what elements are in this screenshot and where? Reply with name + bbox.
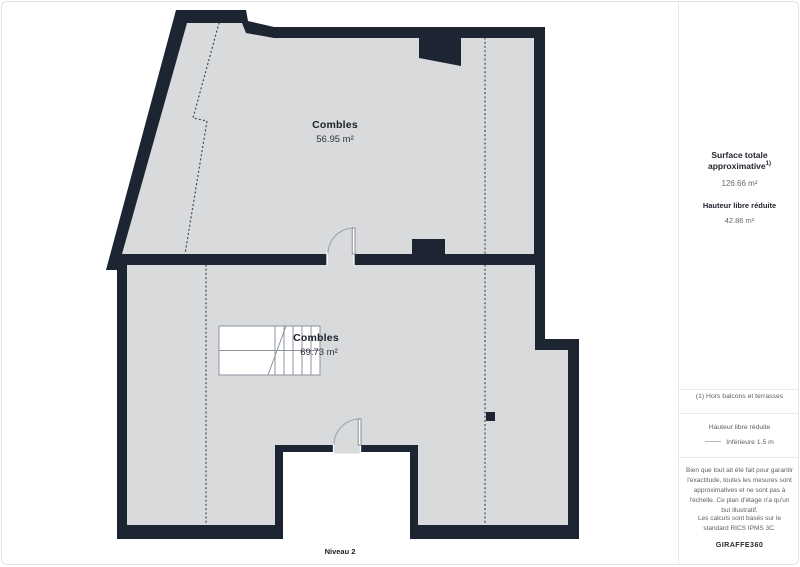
column-post — [486, 412, 495, 421]
surface-total-title-text: Surface totale approximative — [708, 150, 768, 171]
reduced-height-title: Hauteur libre réduite — [685, 201, 794, 210]
floorplan-svg: Combles 56.95 m² Combles 69.73 m² Niveau… — [2, 2, 678, 565]
level-label: Niveau 2 — [325, 547, 356, 556]
footnote-balconies: (1) Hors balcons et terrasses — [685, 393, 794, 400]
surface-total-value: 126.66 m² — [685, 179, 794, 188]
room-area-bottom: 69.73 m² — [300, 347, 338, 358]
brand-logo: GIRAFFE360 — [685, 540, 794, 549]
surface-total-footnote-marker: 1) — [766, 161, 771, 167]
reduced-height-value: 42.86 m² — [685, 216, 794, 225]
room-label-bottom: Combles — [293, 332, 339, 344]
info-sidebar: Surface totale approximative1) 126.66 m²… — [678, 2, 799, 565]
room-area-top: 56.95 m² — [316, 134, 354, 145]
door-leaf — [352, 228, 355, 254]
floorplan-page: Combles 56.95 m² Combles 69.73 m² Niveau… — [1, 1, 799, 565]
disclaimer-text: Bien que tout ait été fait pour garantir… — [685, 466, 794, 516]
door-leaf — [358, 419, 361, 445]
surface-total-title: Surface totale approximative1) — [685, 150, 794, 172]
bottom-notch-void — [283, 452, 410, 544]
legend-item-label: Inférieure 1.5 m — [726, 439, 774, 446]
divider — [679, 457, 799, 458]
divider — [679, 389, 799, 390]
reduced-height-line-swatch — [705, 441, 721, 442]
floorplan-canvas: Combles 56.95 m² Combles 69.73 m² Niveau… — [2, 2, 678, 565]
legend-row: Inférieure 1.5 m — [685, 439, 794, 446]
standard-note: Les calculs sont basés sur le standard R… — [685, 514, 794, 534]
surface-summary-block: Surface totale approximative1) 126.66 m²… — [685, 150, 794, 225]
room-label-top: Combles — [312, 119, 358, 131]
chimney-block-middle — [412, 239, 445, 265]
legend-title: Hauteur libre réduite — [685, 424, 794, 431]
divider — [679, 413, 799, 414]
